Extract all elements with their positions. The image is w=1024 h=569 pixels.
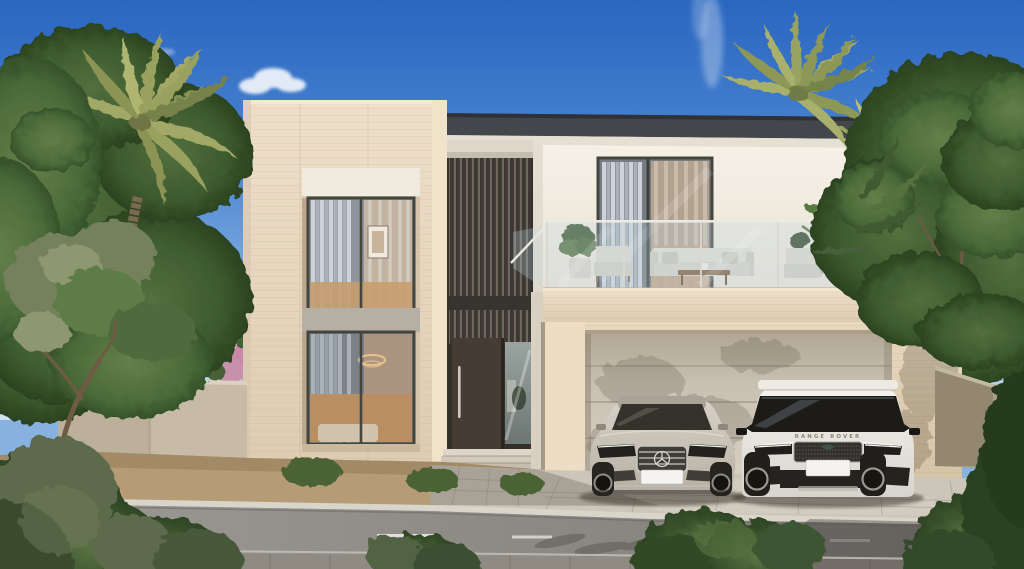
suv-hood-text: RANGE ROVER <box>795 434 862 440</box>
suv: RANGE ROVER <box>732 380 924 508</box>
suv-grille <box>794 442 862 462</box>
sedan-mirror-left <box>596 424 606 430</box>
sedan-windshield <box>612 404 712 430</box>
villa-exterior-render: RANGE ROVER <box>0 0 1024 569</box>
entrance-sidelight <box>505 342 531 444</box>
suv-wheel-right <box>860 452 886 496</box>
interior-sofa <box>318 424 378 442</box>
entrance <box>439 140 543 472</box>
spandrel <box>302 308 420 332</box>
land-rover-badge <box>822 445 834 450</box>
scene-canvas: RANGE ROVER <box>0 0 1024 569</box>
sedan-license-plate <box>641 470 683 484</box>
suv-mirror-right <box>909 428 920 435</box>
suv-mirror-left <box>736 428 747 435</box>
lower-window <box>308 332 414 444</box>
niche-header <box>302 168 420 198</box>
sedan-mirror-right <box>718 424 728 430</box>
left-facade-block <box>243 100 447 470</box>
suv-roof <box>758 380 898 390</box>
suv-windshield <box>746 396 910 432</box>
upper-window <box>308 198 414 310</box>
suv-license-plate <box>806 460 850 476</box>
suv-wheel-left <box>744 452 770 496</box>
door-handle <box>458 366 461 418</box>
sedan-grille <box>637 446 687 472</box>
